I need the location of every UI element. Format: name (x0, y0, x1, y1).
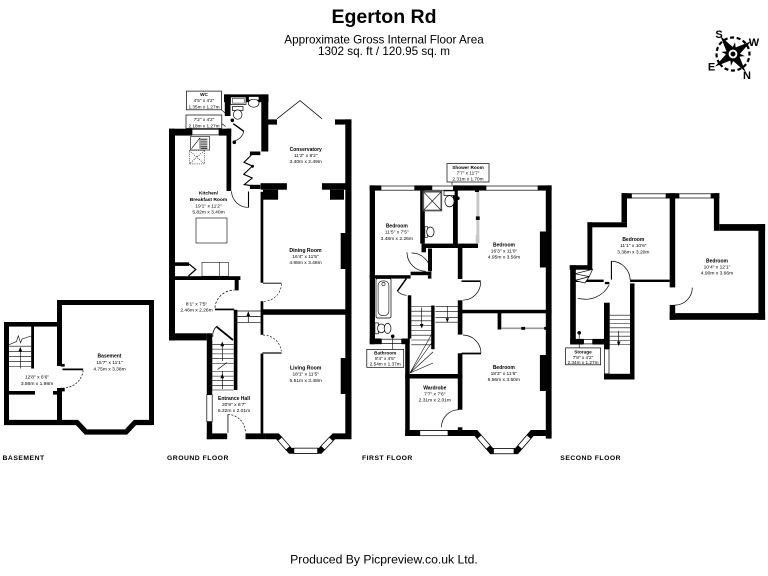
svg-text:11'5" x 7'5": 11'5" x 7'5" (385, 230, 409, 236)
svg-text:Egerton Rd: Egerton Rd (331, 6, 436, 28)
svg-text:20'9" x 6'7": 20'9" x 6'7" (222, 402, 246, 408)
svg-text:WC: WC (200, 92, 208, 97)
svg-text:SECOND FLOOR: SECOND FLOOR (560, 455, 621, 462)
svg-text:2.18m x 1.27m: 2.18m x 1.27m (188, 123, 219, 128)
svg-text:2.31m x 2.01m: 2.31m x 2.01m (419, 397, 451, 403)
svg-text:N: N (743, 70, 751, 82)
svg-text:12'8" x 6'6": 12'8" x 6'6" (25, 375, 49, 381)
svg-text:2.34m x 1.27m: 2.34m x 1.27m (567, 360, 598, 365)
svg-text:3.40m x 2.49m: 3.40m x 2.49m (290, 159, 322, 165)
svg-text:Breakfast Room: Breakfast Room (190, 197, 228, 203)
svg-text:19'1" x 11'2": 19'1" x 11'2" (195, 204, 222, 210)
svg-text:W: W (749, 37, 760, 49)
svg-text:18'1" x 11'5": 18'1" x 11'5" (292, 372, 319, 378)
svg-text:7'7" x 11'7": 7'7" x 11'7" (457, 171, 480, 176)
svg-text:Living Room: Living Room (290, 366, 322, 372)
svg-text:16'3" x 11'0": 16'3" x 11'0" (491, 249, 518, 255)
svg-text:5.82m x 3.40m: 5.82m x 3.40m (192, 209, 224, 215)
svg-text:8'4" x 4'5": 8'4" x 4'5" (375, 356, 396, 361)
svg-text:4.95m x 3.56m: 4.95m x 3.56m (488, 255, 520, 261)
svg-text:4.90m x 3.66m: 4.90m x 3.66m (701, 271, 733, 277)
svg-text:Basement: Basement (98, 354, 122, 360)
svg-text:Produced By Picpreview.co.uk L: Produced By Picpreview.co.uk Ltd. (290, 553, 478, 567)
svg-text:4'5" x 4'2": 4'5" x 4'2" (194, 98, 215, 103)
svg-text:2.31m x 1.70m: 2.31m x 1.70m (452, 176, 483, 181)
svg-text:Bedroom: Bedroom (706, 258, 729, 264)
svg-text:3.38m x 3.20m: 3.38m x 3.20m (617, 249, 649, 255)
svg-text:E: E (708, 62, 715, 74)
svg-text:5.51m x 3.48m: 5.51m x 3.48m (290, 378, 322, 384)
svg-text:4.98m x 3.48m: 4.98m x 3.48m (289, 260, 321, 266)
svg-text:GROUND FLOOR: GROUND FLOOR (167, 455, 229, 462)
svg-text:Bedroom: Bedroom (386, 224, 409, 230)
svg-text:3.48m x 2.26m: 3.48m x 2.26m (381, 236, 413, 242)
svg-text:7'2" x 4'2": 7'2" x 4'2" (194, 117, 215, 122)
svg-text:Conservatory: Conservatory (290, 147, 322, 153)
svg-text:Bedroom: Bedroom (493, 242, 516, 248)
svg-text:11'2" x 8'2": 11'2" x 8'2" (294, 153, 318, 159)
svg-text:2.46m x 2.26m: 2.46m x 2.26m (180, 308, 212, 314)
svg-text:Wardrobe: Wardrobe (423, 386, 446, 392)
svg-text:1302 sq. ft / 120.95 sq. m: 1302 sq. ft / 120.95 sq. m (318, 45, 450, 58)
svg-text:15'7" x 11'1": 15'7" x 11'1" (96, 360, 123, 366)
svg-text:Storage: Storage (574, 349, 592, 354)
svg-text:Shower Room: Shower Room (452, 165, 484, 170)
svg-text:Bedroom: Bedroom (493, 365, 516, 371)
svg-text:Bathroom: Bathroom (374, 350, 396, 355)
svg-text:10'4" x 12'1": 10'4" x 12'1" (704, 265, 731, 271)
svg-text:4.75m x 3.38m: 4.75m x 3.38m (93, 366, 125, 372)
svg-text:Entrance Hall: Entrance Hall (218, 396, 251, 402)
svg-text:S: S (715, 29, 722, 41)
svg-text:2.54m x 1.37m: 2.54m x 1.37m (370, 361, 401, 366)
svg-text:7'7" x 7'6": 7'7" x 7'6" (424, 391, 446, 397)
svg-text:3.86m x 1.98m: 3.86m x 1.98m (21, 381, 53, 387)
svg-text:5.56m x 3.50m: 5.56m x 3.50m (488, 377, 520, 383)
svg-text:1.35m x 1.27m: 1.35m x 1.27m (188, 104, 219, 109)
svg-text:18'3" x 11'6": 18'3" x 11'6" (491, 371, 518, 377)
svg-text:Dining Room: Dining Room (289, 248, 322, 254)
svg-text:11'1" x 10'6": 11'1" x 10'6" (620, 243, 647, 249)
svg-text:Bedroom: Bedroom (622, 237, 645, 243)
svg-text:16'4" x 11'5": 16'4" x 11'5" (292, 254, 319, 260)
svg-text:Kitchen/: Kitchen/ (199, 191, 219, 197)
svg-text:FIRST FLOOR: FIRST FLOOR (362, 455, 413, 462)
svg-text:6.32m x 2.01m: 6.32m x 2.01m (218, 408, 250, 414)
svg-text:8'1" x 7'5": 8'1" x 7'5" (186, 301, 208, 307)
svg-text:BASEMENT: BASEMENT (3, 455, 45, 462)
